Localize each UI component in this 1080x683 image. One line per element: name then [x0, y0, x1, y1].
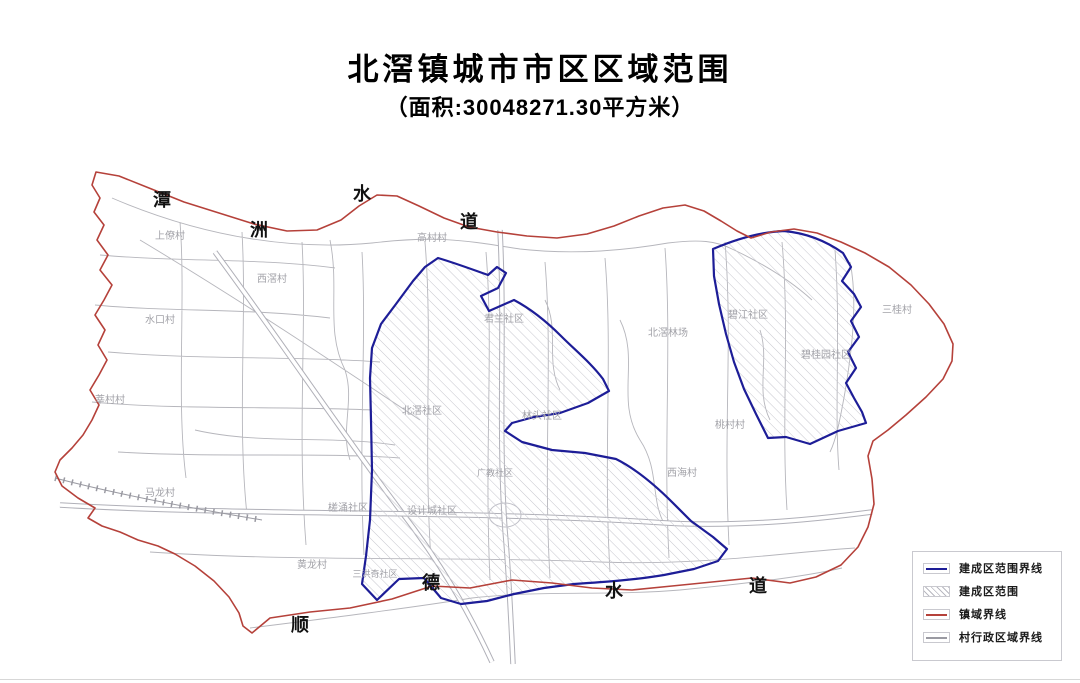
- map-label-sanhongqi: 三洪奇社区: [352, 568, 397, 579]
- legend-label: 建成区范围界线: [959, 560, 1043, 576]
- built-up-boundary-line-icon: [923, 563, 950, 574]
- map-label-malong: 马龙村: [145, 486, 175, 499]
- waterway-bottom-char-2: 德: [422, 572, 440, 593]
- map-label-chayong: 槎涌社区: [328, 501, 368, 514]
- map-label-guangjiao: 广教社区: [477, 467, 513, 478]
- waterway-bottom-char-3: 水: [605, 580, 624, 601]
- village-boundary-line-icon: [923, 632, 950, 643]
- map-label-huanglong: 黄龙村: [297, 558, 327, 571]
- map-label-sangui: 三桂村: [882, 303, 912, 316]
- map-label-biguiyuan: 碧桂园社区: [801, 348, 851, 361]
- legend-item-built-up-boundary: 建成区范围界线: [923, 562, 1061, 574]
- waterway-top-char-4: 道: [460, 211, 478, 232]
- map-label-lintou: 林头社区: [522, 409, 562, 422]
- map-label-shejicheng: 设计城社区: [407, 504, 457, 517]
- legend: 建成区范围界线 建成区范围 镇域界线 村行政区域界线: [912, 551, 1062, 661]
- map-label-beijiao-linchang: 北滘林场: [648, 326, 688, 339]
- map-label-taocun: 桃村村: [715, 418, 745, 431]
- built-up-area-central: [362, 258, 727, 604]
- map-label-xihai: 西海村: [667, 466, 697, 479]
- map-label-xijiao: 西滘村: [257, 272, 287, 285]
- legend-item-built-up-area: 建成区范围: [923, 585, 1061, 597]
- map-label-gaocun: 高村村: [417, 231, 447, 244]
- railway: [55, 478, 262, 520]
- map-label-beijiao-shequ: 北滘社区: [402, 404, 442, 417]
- legend-label: 镇域界线: [959, 606, 1007, 622]
- map-label-xincun: 莘村村: [95, 393, 125, 406]
- built-up-area-hatch-icon: [923, 586, 950, 597]
- built-up-area-east: [713, 231, 866, 444]
- map-label-junlan: 君兰社区: [484, 312, 524, 325]
- page-bottom-border: [0, 679, 1080, 680]
- legend-item-town-boundary: 镇域界线: [923, 608, 1061, 620]
- waterway-bottom-char-4: 道: [749, 575, 767, 596]
- map-label-shangliao: 上僚村: [155, 229, 185, 242]
- town-boundary-line-icon: [923, 609, 950, 620]
- map-label-bijiang: 碧江社区: [728, 308, 768, 321]
- waterway-top-char-2: 洲: [250, 220, 268, 240]
- waterway-top-char-1: 潭: [153, 190, 171, 210]
- waterway-bottom-char-1: 顺: [291, 615, 309, 635]
- legend-item-village-boundary: 村行政区域界线: [923, 631, 1061, 643]
- map-label-shuikou: 水口村: [145, 313, 175, 326]
- legend-label: 建成区范围: [959, 583, 1019, 599]
- map-page: 北滘镇城市市区区域范围 （面积:30048271.30平方米）: [0, 0, 1080, 683]
- legend-label: 村行政区域界线: [959, 629, 1043, 645]
- waterway-top-char-3: 水: [353, 183, 372, 204]
